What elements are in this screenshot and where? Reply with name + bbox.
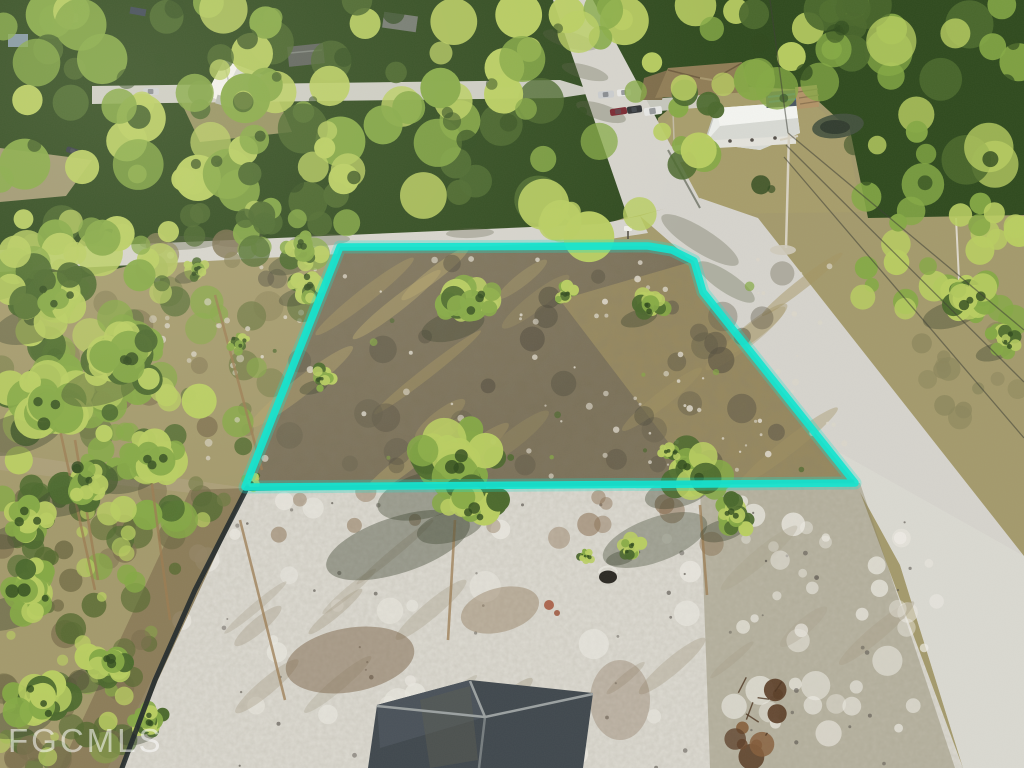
photo-grain xyxy=(0,0,1024,768)
aerial-photo-canvas xyxy=(0,0,1024,768)
watermark-text: FGCMLS xyxy=(8,722,164,760)
aerial-photo: FGCMLS xyxy=(0,0,1024,768)
